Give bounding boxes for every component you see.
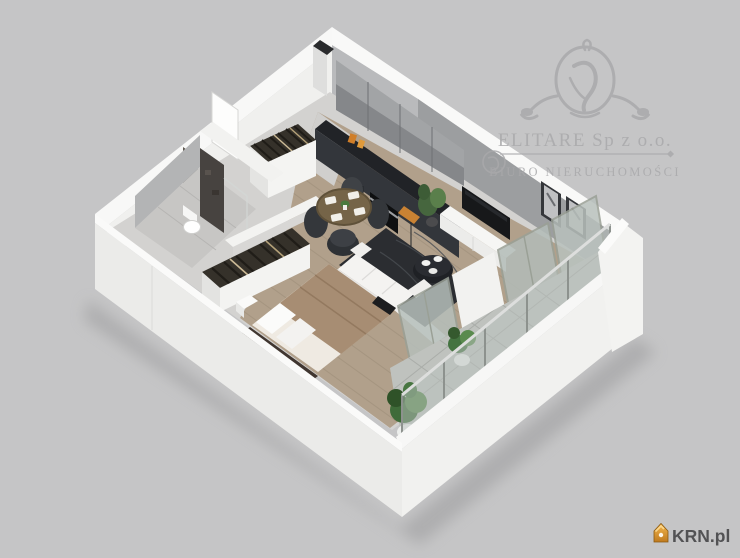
watermark-company: ELITARE Sp z o.o. [498, 130, 672, 151]
floorplan-screenshot: ELITARE Sp z o.o. BIURO NIERUCHOMOŚCI KR… [0, 0, 740, 558]
watermark-bureau: BIURO NIERUCHOMOŚCI [489, 165, 681, 179]
krn-logo-text: KRN.pl [672, 526, 730, 546]
floorplan-render: ELITARE Sp z o.o. BIURO NIERUCHOMOŚCI KR… [0, 0, 740, 558]
